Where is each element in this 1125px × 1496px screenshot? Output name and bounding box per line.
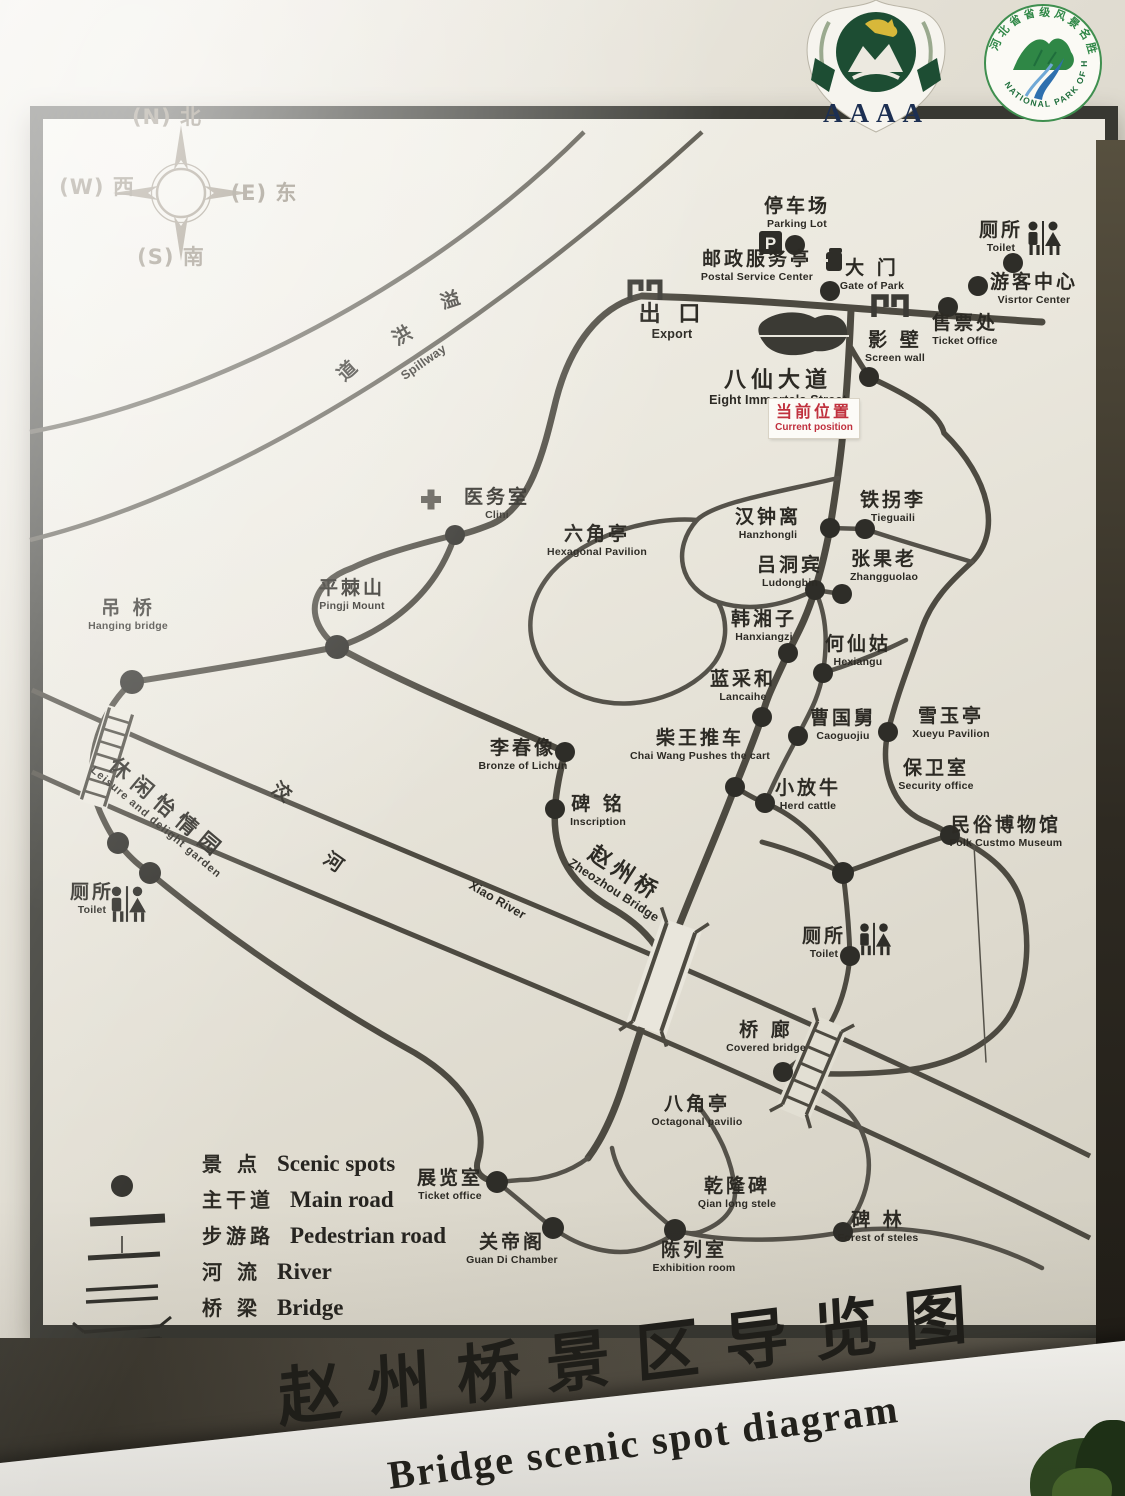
poi-parking-lot: 停车场 Parking Lot: [764, 196, 830, 231]
poi-exit: 出 口 Export: [639, 302, 706, 343]
poi-forest-of-steles: 碑 林 Forest of steles: [838, 1210, 919, 1245]
poi-lancaihe: 蓝采和 Lancaihe: [710, 669, 776, 704]
poi-exhibition-room: 陈列室 Exhibition room: [653, 1240, 736, 1275]
medical-cross-icon: [421, 490, 441, 510]
hebei-park-logo: 河北省省级风景名胜区 NATIONAL PARK OF HEBEI: [982, 2, 1104, 124]
poi-zhangguolao: 张果老 Zhangguolao: [850, 549, 918, 584]
poi-hanging-bridge: 吊 桥 Hanging bridge: [88, 598, 168, 633]
poi-gate-of-park: 大 门 Gate of Park: [840, 258, 904, 293]
screen-wall-shape: [758, 312, 847, 355]
legend-row: 桥 梁Bridge: [202, 1292, 343, 1321]
toilet-icon-north: [1029, 221, 1062, 255]
compass-label-south: (S) 南: [137, 241, 205, 271]
toilet-icon-middle: [860, 923, 891, 955]
current-position-marker: 当前位置 Current position: [769, 399, 859, 438]
poi-security-office: 保卫室 Security office: [898, 758, 973, 793]
toilet-icon-west: [112, 886, 146, 922]
poi-caoguojiu: 曹国舅 Caoguojiu: [810, 708, 876, 743]
poi-xueyu-pavilion: 雪玉亭 Xueyu Pavilion: [912, 706, 990, 741]
compass-label-north: (N) 北: [132, 101, 202, 131]
poi-postal-service-center: 邮政服务亭 Postal Service Center: [701, 249, 813, 284]
poi-pingji-mount: 平棘山 Pingji Mount: [319, 578, 385, 613]
poi-bronze-of-lichun: 李春像 Bronze of Lichun: [479, 738, 568, 773]
poi-toilet-north: 厕所 Toilet: [979, 220, 1023, 255]
poi-chai-wang-pushes-the-cart: 柴王推车 Chai Wang Pushes the cart: [630, 728, 770, 763]
poi-visitor-center: 游客中心 Visrtor Center: [990, 272, 1078, 307]
poi-tieguaili: 铁拐李 Tieguaili: [860, 490, 926, 525]
poi-ludongbin: 吕洞宾 Ludongbin: [757, 555, 823, 590]
poi-hexiangu: 何仙姑 Hexiangu: [825, 634, 891, 669]
legend-row: 河 流River: [202, 1256, 332, 1285]
poi-exhibition-ticket-office: 展览室 Ticket office: [417, 1168, 483, 1203]
poi-hanxiangzi: 韩湘子 Hanxiangzi: [731, 609, 797, 644]
compass-label-west: (W) 西: [59, 171, 135, 201]
poi-inscription: 碑 铭 Inscription: [570, 794, 626, 829]
legend-row: 步游路Pedestrian road: [202, 1220, 446, 1249]
poi-ticket-office: 售票处 Ticket Office: [932, 313, 998, 348]
compass-label-east: (E) 东: [231, 177, 298, 207]
poi-hexagonal-pavilion: 六角亭 Hexagonal Pavilion: [547, 524, 647, 559]
poi-toilet-middle: 厕所 Toilet: [802, 926, 846, 961]
poi-guan-di-chamber: 关帝阁 Guan Di Chamber: [466, 1232, 558, 1267]
poi-folk-customs-museum: 民俗博物馆 Folk Custmo Museum: [950, 815, 1063, 850]
aaaa-grade-badge: AAAA: [795, 0, 957, 136]
poi-herd-cattle: 小放牛 Herd cattle: [775, 778, 841, 813]
poi-clinic: 医务室 Clini: [464, 487, 530, 522]
legend-row: 主干道Main road: [202, 1184, 394, 1213]
poi-qianlong-stele: 乾隆碑 Qian long stele: [698, 1176, 776, 1211]
poi-octagonal-pavilion: 八角亭 Octagonal pavilio: [652, 1094, 743, 1129]
photo-of-sign: P: [0, 0, 1125, 1496]
poi-covered-bridge: 桥 廊 Covered bridge: [726, 1020, 806, 1055]
poi-screen-wall: 影 壁 Screen wall: [865, 330, 925, 365]
poi-toilet-west: 厕所 Toilet: [70, 882, 114, 917]
legend-row: 景 点Scenic spots: [202, 1148, 395, 1177]
sign-frame-right-edge: [1096, 140, 1125, 1390]
badge-grade-text: AAAA: [823, 98, 929, 128]
legend-symbols: [73, 1175, 171, 1353]
poi-hanzhongli: 汉钟离 Hanzhongli: [735, 507, 801, 542]
